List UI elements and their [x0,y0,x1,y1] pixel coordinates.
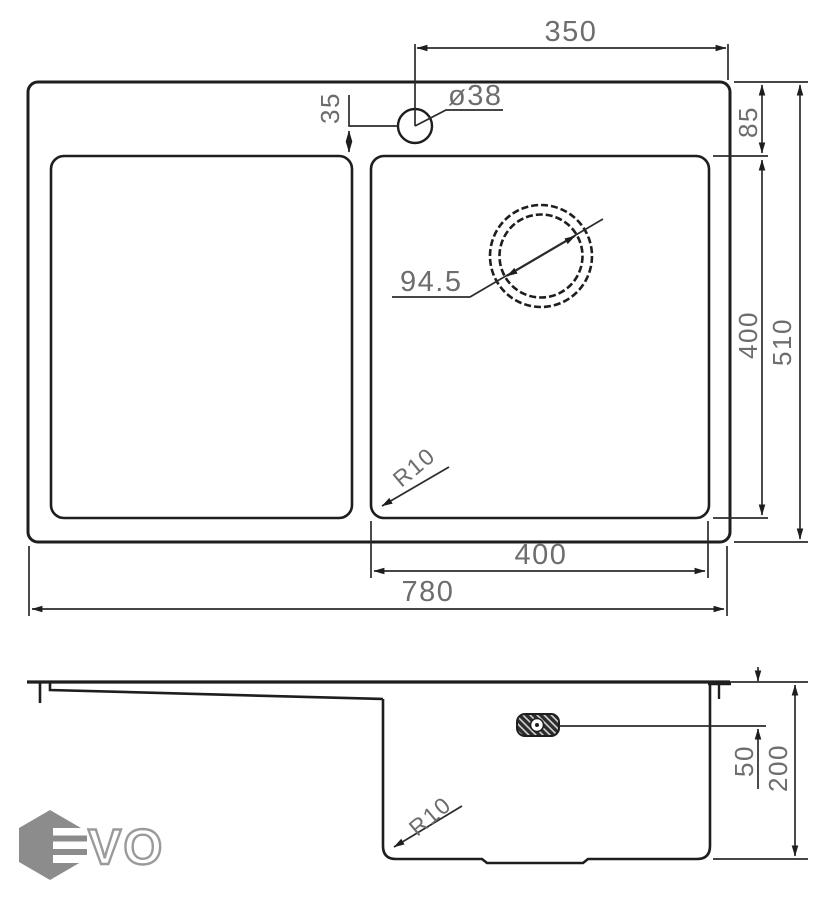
dim-label-85: 85 [733,106,763,138]
logo-stripe [53,842,88,850]
right-mount-clip [708,684,731,699]
dim-corner-radius-top: R10 [382,442,449,506]
sink-outer-rim [28,82,730,542]
dim-bowl-depth: 200 [763,685,795,856]
dim-label-o38: ø38 [448,80,502,112]
logo-text-vo: VO [88,819,164,875]
dim-label-400h: 400 [515,539,568,571]
dim-label-35: 35 [315,92,345,124]
drainboard-surface [50,682,383,699]
top-view: 350 ø38 35 85 400 510 [28,16,808,616]
logo-stripe [53,855,88,863]
dim-rim-to-overflow: 50 [729,667,759,789]
drawing-page: 350 ø38 35 85 400 510 [0,0,834,900]
bowl-profile [383,684,710,863]
logo-e-bar [53,849,87,855]
dim-rim-to-bowl: 85 [733,85,763,153]
dim-overall-width: 780 [29,546,727,616]
dim-label-r10-top: R10 [388,442,440,492]
dim-overall-depth: 510 [767,85,800,539]
dim-label-350: 350 [545,16,598,48]
dim-bowl-length: 400 [733,160,763,515]
dim-faucet-diameter: ø38 [415,80,503,126]
drainboard-bowl [51,156,352,518]
dim-label-94-5: 94.5 [400,266,462,298]
logo-e-bar [53,836,87,842]
dim-label-r10-side: R10 [404,791,456,841]
overflow-hole [517,714,559,736]
overflow-hole-dot [535,723,539,727]
dim-label-50: 50 [729,745,759,777]
dim-label-780: 780 [402,576,455,608]
dim-faucet-to-bowl: 35 [315,92,398,152]
dim-label-510: 510 [767,318,797,366]
dim-corner-radius-side: R10 [394,791,462,847]
dim-label-400v: 400 [733,311,763,359]
dim-bowl-width: 400 [371,521,708,578]
dim-label-200: 200 [763,744,793,792]
technical-drawing: 350 ø38 35 85 400 510 [0,0,834,900]
logo-stripe [53,828,88,836]
brand-logo: VO [19,810,164,880]
